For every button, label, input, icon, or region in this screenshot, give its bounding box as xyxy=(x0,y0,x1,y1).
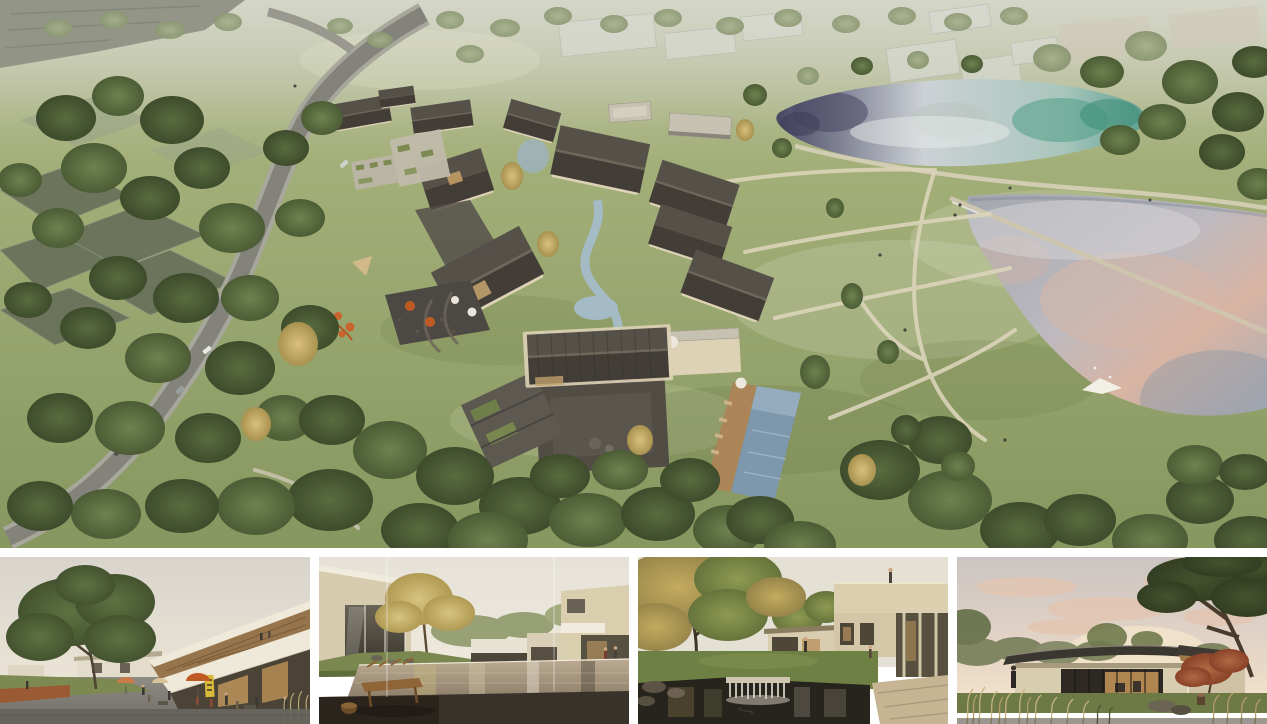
lawn xyxy=(957,693,1267,713)
stone-path xyxy=(872,675,948,724)
standing-person xyxy=(1011,665,1016,688)
thumbnail-pavilion-dusk xyxy=(957,557,1267,724)
aerial-site-rendering xyxy=(0,0,1267,548)
thumbnail-row xyxy=(0,557,1267,724)
thumbnail-garden-pond xyxy=(638,557,948,724)
rendering-board xyxy=(0,0,1267,724)
center-low-buildings xyxy=(764,625,838,653)
foreground-pavement xyxy=(0,709,310,724)
terrace-person xyxy=(889,568,893,583)
foreground-shadow xyxy=(957,718,1267,724)
thumbnail-courtyard-pool xyxy=(319,557,629,724)
thumbnail-street-plaza xyxy=(0,557,310,724)
pond xyxy=(638,677,870,724)
